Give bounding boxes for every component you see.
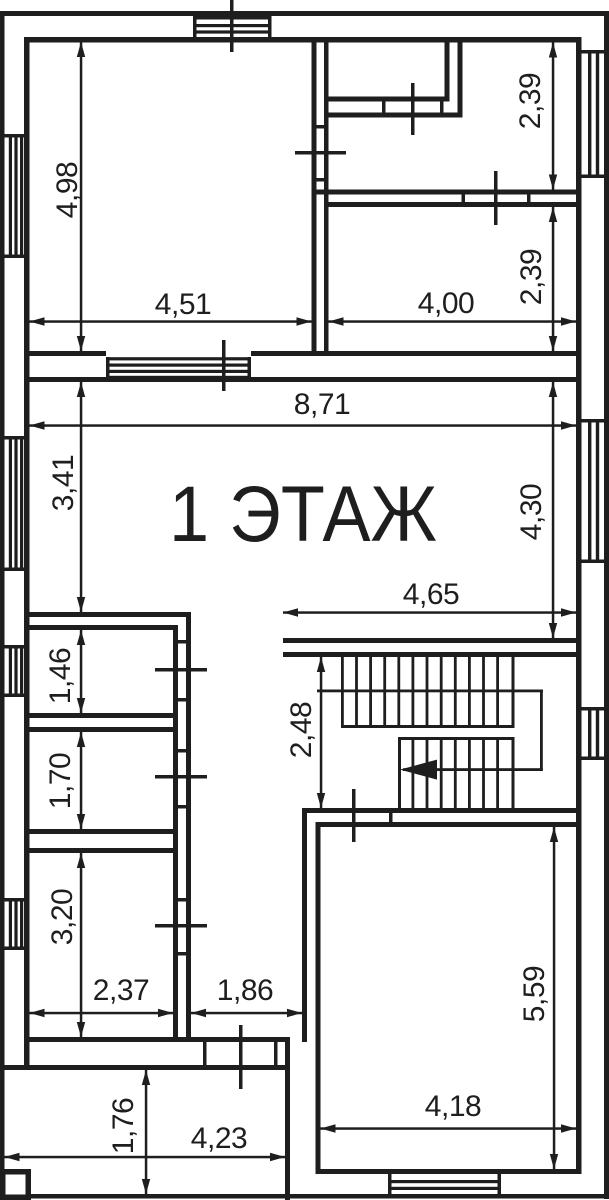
svg-text:1 ЭТАЖ: 1 ЭТАЖ: [169, 469, 437, 558]
svg-text:4,51: 4,51: [155, 288, 211, 321]
svg-text:2,48: 2,48: [285, 702, 318, 758]
svg-text:2,39: 2,39: [515, 249, 548, 305]
svg-text:1,46: 1,46: [44, 648, 77, 704]
svg-text:2,37: 2,37: [93, 974, 149, 1007]
svg-text:1,70: 1,70: [44, 753, 77, 809]
svg-text:4,23: 4,23: [191, 1122, 247, 1155]
svg-text:3,41: 3,41: [47, 455, 80, 511]
svg-text:4,18: 4,18: [425, 1090, 481, 1123]
svg-text:3,20: 3,20: [46, 889, 79, 945]
svg-text:5,59: 5,59: [518, 966, 551, 1022]
svg-text:4,30: 4,30: [515, 484, 548, 540]
svg-text:2,39: 2,39: [514, 73, 547, 129]
svg-text:4,98: 4,98: [51, 162, 84, 218]
svg-text:1,76: 1,76: [107, 1098, 140, 1154]
svg-text:4,00: 4,00: [418, 287, 474, 320]
svg-text:1,86: 1,86: [217, 974, 273, 1007]
svg-text:8,71: 8,71: [294, 388, 350, 421]
svg-text:4,65: 4,65: [403, 578, 459, 611]
